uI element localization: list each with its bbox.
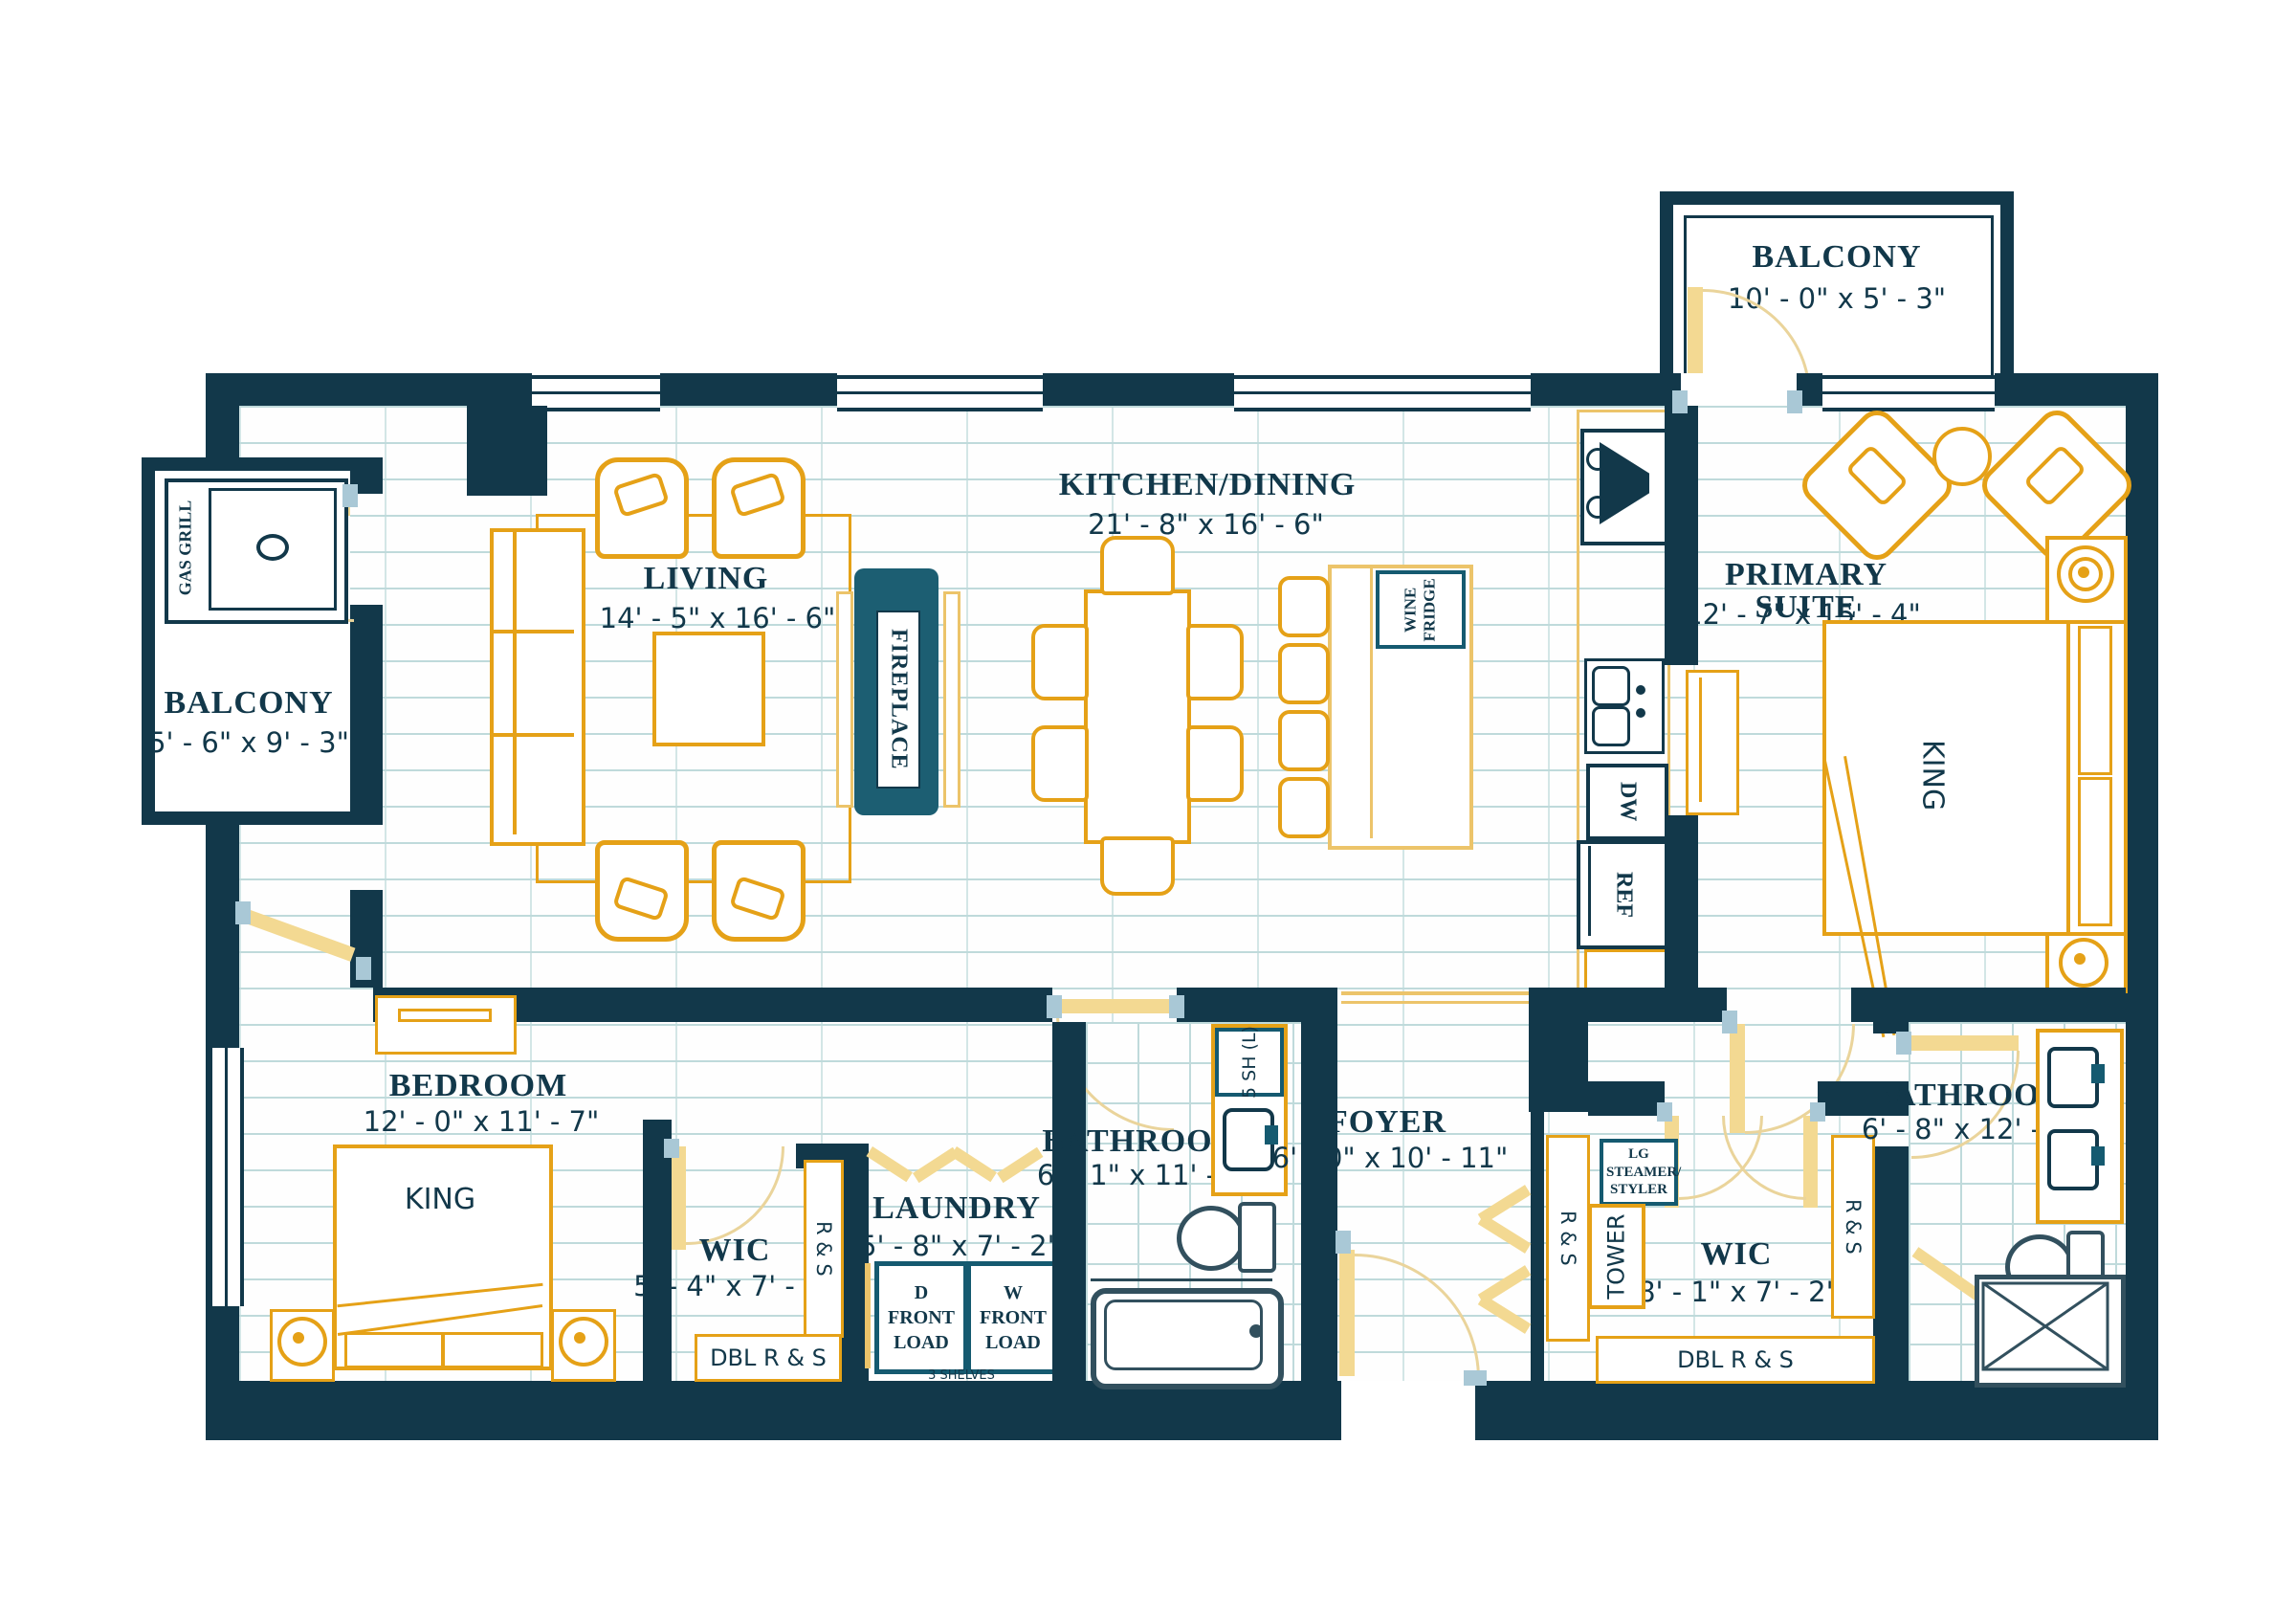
door-hinge xyxy=(1047,995,1062,1018)
door-hinge xyxy=(1896,1032,1911,1055)
wic-right-shelf: R & S xyxy=(1831,1135,1875,1319)
window xyxy=(837,375,1043,411)
room-name-wic-right: WIC xyxy=(1660,1238,1813,1271)
sink-basin xyxy=(1592,666,1630,706)
door-hinge xyxy=(1169,995,1184,1018)
wic-left-dbl-shelf: DBL R & S xyxy=(695,1334,842,1382)
dining-chair xyxy=(1100,836,1175,896)
gas-grill-knob xyxy=(256,534,289,561)
dryer: D FRONT LOAD xyxy=(874,1261,968,1374)
wic-left-dbl-rs: DBL R & S xyxy=(710,1344,827,1371)
exterior-wall xyxy=(660,373,837,406)
styler-tower: TOWER xyxy=(1588,1204,1645,1309)
room-dims-laundry: 5' - 8" x 7' - 2" xyxy=(859,1233,1060,1260)
sofa xyxy=(490,528,585,846)
room-name-wic-left: WIC xyxy=(658,1234,811,1267)
burner xyxy=(1586,496,1609,519)
sink-faucet xyxy=(1636,685,1645,695)
primary-bed-king: KING xyxy=(1916,740,1950,811)
suite-hall-wall xyxy=(1851,988,2126,1022)
door-hinge xyxy=(342,484,358,507)
window xyxy=(1822,375,1995,411)
linen-cabinet-text: 5 SH (L) xyxy=(1239,1026,1260,1099)
exterior-wall xyxy=(1043,373,1234,406)
foyer-closet-wall xyxy=(1529,988,1588,1112)
room-name-balcony-left: BALCONY xyxy=(143,687,354,720)
wic-right-top-wall xyxy=(1588,1081,1665,1116)
balcony-top-wall xyxy=(1660,191,2014,205)
bath-center-door-leaf xyxy=(1056,999,1171,1013)
suite-door-panel xyxy=(1699,678,1702,802)
toilet-bowl xyxy=(1177,1206,1246,1271)
nightstand-lamp-dot xyxy=(2074,953,2086,965)
headboard-panel xyxy=(2078,626,2112,775)
nightstand-lamp-dot xyxy=(574,1332,585,1344)
balcony-living-wall xyxy=(350,605,383,825)
footboard-panel xyxy=(344,1332,444,1368)
door-hinge xyxy=(1810,1102,1825,1122)
nightstand-lamp-dot xyxy=(2078,567,2089,578)
window xyxy=(532,375,660,411)
room-name-balcony-top: BALCONY xyxy=(1712,241,1961,274)
sink-faucet xyxy=(1636,708,1645,718)
dishwasher-text: DW xyxy=(1615,782,1641,821)
fireplace-shelf xyxy=(836,591,853,808)
sofa-cushion-line xyxy=(494,630,574,633)
room-name-laundry: LAUNDRY xyxy=(851,1192,1062,1225)
bathtub-inner xyxy=(1104,1300,1263,1370)
laundry-bath-wall xyxy=(1052,1022,1086,1383)
sink-faucet xyxy=(2091,1064,2105,1083)
dining-chair xyxy=(1186,624,1244,700)
shower-rod xyxy=(1091,1278,1272,1281)
balcony-top-wall xyxy=(1660,191,1673,400)
room-dims-bedroom: 12' - 0" x 11' - 7" xyxy=(352,1108,610,1136)
bedroom-bed-king: KING xyxy=(354,1183,526,1216)
room-name-living: LIVING xyxy=(591,563,821,595)
balcony-top-wall xyxy=(2000,191,2014,400)
sofa-cushion-line xyxy=(494,733,574,737)
shower xyxy=(1975,1275,2126,1388)
dining-chair xyxy=(1186,725,1244,802)
toilet-tank xyxy=(1238,1202,1276,1273)
sofa-back-line xyxy=(513,532,517,834)
balcony-door-opening xyxy=(1681,373,1797,406)
bar-stool xyxy=(1278,777,1330,838)
washer-text: W FRONT LOAD xyxy=(980,1280,1047,1355)
wic-right-dbl-shelf: DBL R & S xyxy=(1596,1336,1875,1384)
wic-right-rs: R & S xyxy=(1842,1199,1865,1255)
door-hinge xyxy=(1336,1231,1351,1254)
laundry-shelves-label: 3 SHELVES xyxy=(869,1368,1054,1383)
dresser-handle xyxy=(398,1009,492,1022)
sink-faucet xyxy=(2091,1146,2105,1166)
door-hinge xyxy=(1722,1011,1737,1033)
footboard-panel xyxy=(442,1332,543,1368)
room-name-kitchen: KITCHEN/DINING xyxy=(1045,469,1370,501)
steamer-text: LG STEAMER/ STYLER xyxy=(1606,1145,1671,1199)
wic-left-rs: R & S xyxy=(812,1221,835,1277)
headboard-panel xyxy=(2078,777,2112,926)
steamer-styler: LG STEAMER/ STYLER xyxy=(1600,1139,1678,1206)
balcony-left-wall xyxy=(142,457,155,825)
tower-text: TOWER xyxy=(1603,1213,1630,1299)
suite-wall xyxy=(1665,815,1698,988)
door-hinge xyxy=(1464,1370,1487,1386)
door-hinge xyxy=(356,957,371,980)
island-divider xyxy=(1370,568,1373,838)
room-dims-foyer: 6' - 0" x 10' - 11" xyxy=(1270,1144,1510,1172)
dryer-text: D FRONT LOAD xyxy=(888,1280,955,1355)
fireplace-slot: FIREPLACE xyxy=(876,611,920,789)
ref-door-line xyxy=(1580,846,1591,936)
exterior-wall xyxy=(2126,373,2158,1440)
room-dims-kitchen: 21' - 8" x 16' - 6" xyxy=(1070,511,1342,539)
wine-fridge: WINE FRIDGE xyxy=(1376,570,1466,649)
nightstand-lamp-dot xyxy=(293,1332,304,1344)
exterior-wall xyxy=(206,373,239,467)
bath-foyer-wall xyxy=(1301,988,1337,1383)
foyer-closet-wall xyxy=(1531,1110,1544,1383)
tub-faucet xyxy=(1249,1324,1263,1338)
pillar xyxy=(467,406,547,496)
bar-stool xyxy=(1278,576,1330,637)
wic-bath-wall xyxy=(1873,1146,1909,1383)
shower-cross-icon xyxy=(1979,1279,2111,1373)
floor-plan: BALCONY 10' - 0" x 5' - 3" GAS GRILL BAL… xyxy=(0,0,2296,1600)
room-dims-living: 14' - 5" x 16' - 6" xyxy=(584,605,851,633)
exterior-wall xyxy=(1531,373,1681,406)
dishwasher: DW xyxy=(1586,764,1668,840)
dining-chair xyxy=(1031,725,1089,802)
balcony-left-wall xyxy=(142,811,364,825)
fireplace-text: FIREPLACE xyxy=(886,629,912,770)
gas-grill-label: GAS GRILL xyxy=(168,484,203,611)
primary-bed-label: KING xyxy=(1894,699,1971,852)
door-hinge xyxy=(1672,390,1688,413)
balcony-left-wall xyxy=(142,457,364,471)
fireplace-shelf xyxy=(943,591,960,808)
bath-right-door-leaf xyxy=(1911,1035,2019,1051)
coffee-table xyxy=(652,632,765,746)
exterior-wall xyxy=(206,1381,2158,1440)
wic-right-dbl-rs: DBL R & S xyxy=(1677,1346,1794,1373)
dining-chair xyxy=(1031,624,1089,700)
window xyxy=(1234,375,1531,411)
bedroom-window xyxy=(209,1048,244,1306)
linen-cabinet: 5 SH (L) xyxy=(1215,1028,1284,1097)
room-name-bedroom: BEDROOM xyxy=(364,1070,593,1102)
bar-stool xyxy=(1278,643,1330,704)
foyer-closet-rs: R & S xyxy=(1556,1211,1579,1266)
bar-stool xyxy=(1278,710,1330,771)
laundry-bracket xyxy=(865,1263,871,1368)
room-name-foyer: FOYER xyxy=(1291,1106,1483,1139)
refrigerator-text: REF xyxy=(1611,872,1637,918)
dresser xyxy=(375,995,517,1055)
dining-table xyxy=(1084,589,1191,844)
entry-opening xyxy=(1341,1381,1475,1440)
door-hinge xyxy=(1787,390,1802,413)
gas-grill-text: GAS GRILL xyxy=(176,500,196,595)
burner xyxy=(1586,448,1609,471)
entry-door-leaf xyxy=(1339,1250,1355,1376)
foyer-closet-shelf: R & S xyxy=(1546,1135,1590,1342)
dining-chair xyxy=(1100,536,1175,595)
side-table xyxy=(1932,427,1992,486)
suite-door-leaf xyxy=(1686,670,1739,815)
door-hinge xyxy=(235,901,251,924)
exterior-wall xyxy=(206,373,532,406)
door-hinge xyxy=(1657,1102,1672,1122)
wine-fridge-text: WINE FRIDGE xyxy=(1402,576,1441,643)
room-dims-wic-right: 8' - 1" x 7' - 2" xyxy=(1638,1278,1839,1306)
sink-basin xyxy=(1592,706,1630,746)
wic-left-shelf: R & S xyxy=(804,1160,844,1338)
washer: W FRONT LOAD xyxy=(966,1261,1060,1374)
door-hinge xyxy=(664,1139,679,1158)
room-dims-balcony-left: 5' - 6" x 9' - 3" xyxy=(134,729,364,757)
